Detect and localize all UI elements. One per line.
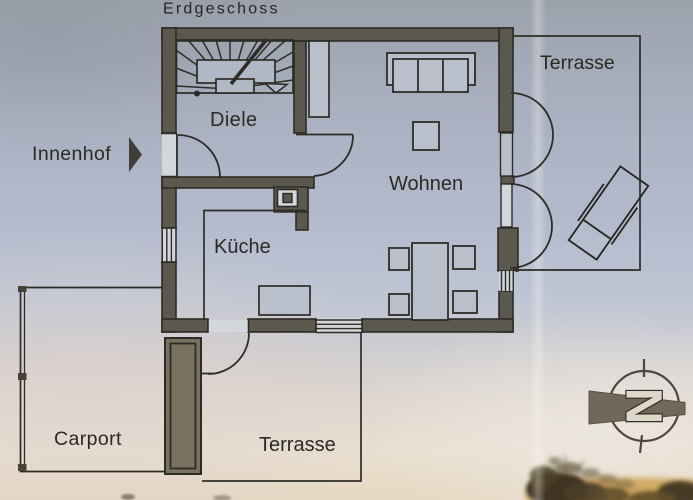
svg-text:Carport: Carport	[54, 428, 122, 450]
svg-text:Diele: Diele	[210, 109, 258, 131]
svg-text:Küche: Küche	[214, 236, 271, 258]
svg-text:Terrasse: Terrasse	[259, 434, 336, 456]
svg-text:Wohnen: Wohnen	[389, 173, 463, 195]
svg-text:Innenhof: Innenhof	[32, 143, 111, 165]
svg-text:Terrasse: Terrasse	[540, 52, 615, 74]
svg-text:N: N	[616, 388, 673, 425]
svg-text:Erdgeschoss: Erdgeschoss	[163, 1, 280, 18]
